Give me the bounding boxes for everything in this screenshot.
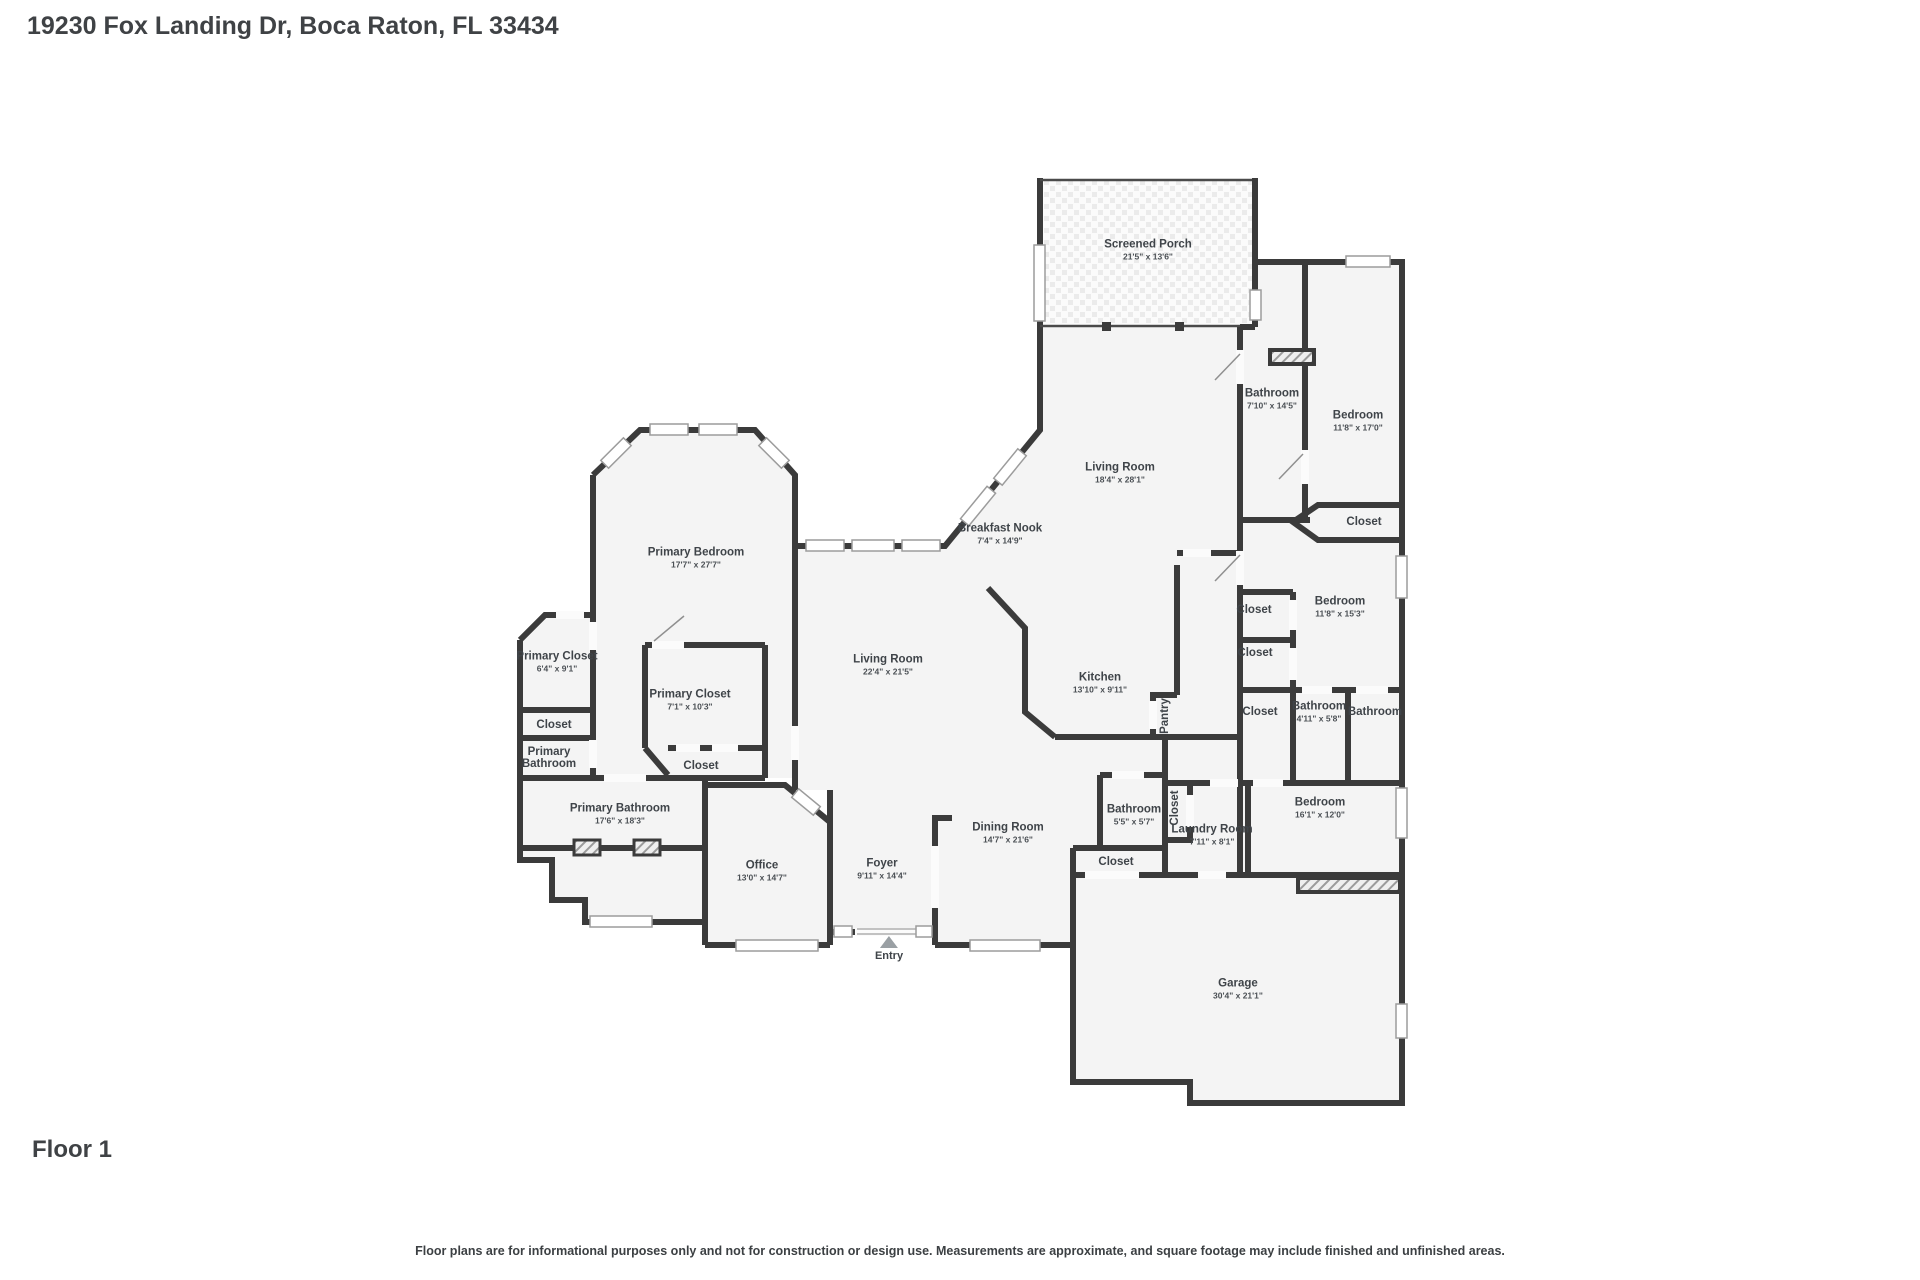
bathroom-sink-left (574, 840, 600, 855)
garage-storage-strip (1298, 878, 1400, 892)
entry-label: Entry (875, 950, 903, 962)
floor-plan: Screened Porch21'5" x 13'6"Bathroom7'10"… (0, 0, 1920, 1280)
entry-marker: Entry (875, 936, 903, 962)
floor-label: Floor 1 (32, 1136, 112, 1164)
floorplan-svg (0, 0, 1920, 1280)
entry-arrow-icon (880, 936, 898, 948)
screened-porch-floor (1043, 181, 1252, 324)
bathroom-shelf (1270, 350, 1314, 364)
bathroom-sink-right (634, 840, 660, 855)
disclaimer-text: Floor plans are for informational purpos… (0, 1244, 1920, 1258)
floor-plan-page: 19230 Fox Landing Dr, Boca Raton, FL 334… (0, 0, 1920, 1280)
